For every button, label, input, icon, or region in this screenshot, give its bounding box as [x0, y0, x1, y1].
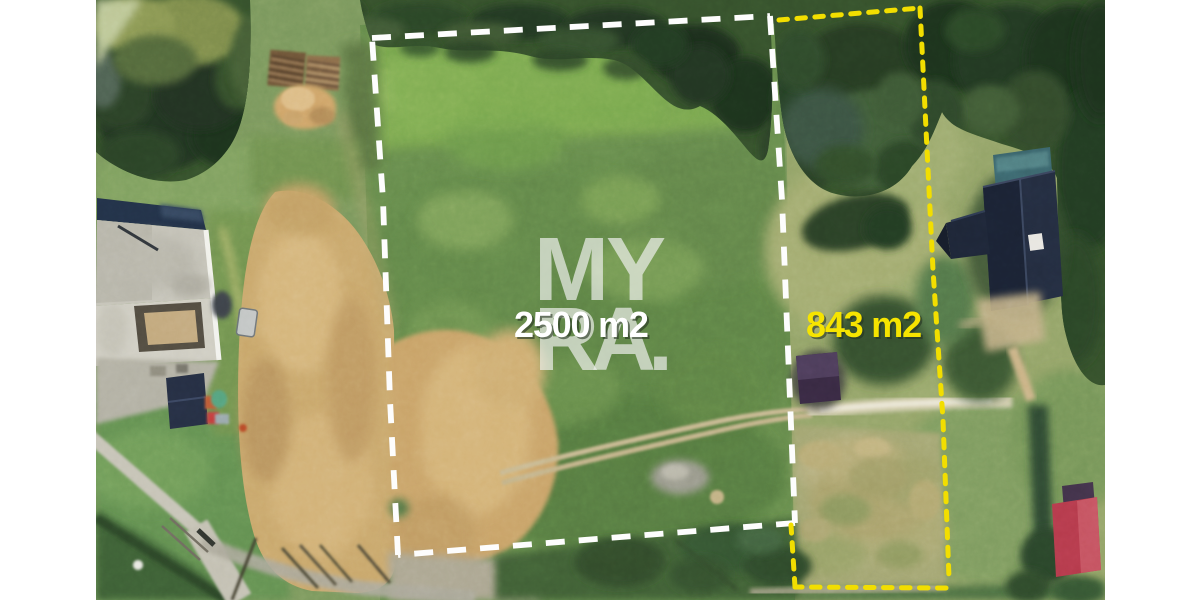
- svg-text:2500 m2: 2500 m2: [514, 304, 648, 345]
- svg-text:843 m2: 843 m2: [806, 304, 921, 345]
